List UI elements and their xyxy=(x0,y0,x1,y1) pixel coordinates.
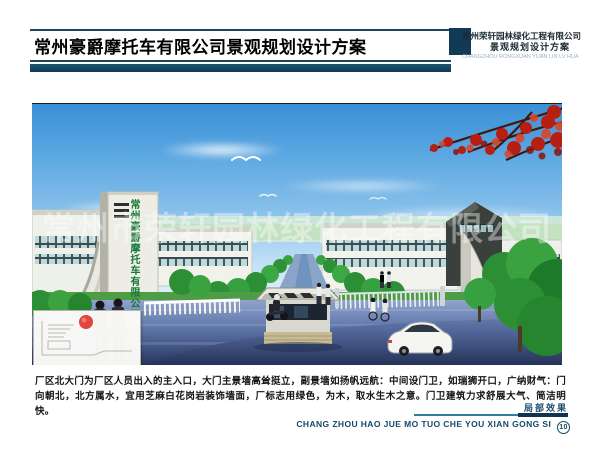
company-pinyin: CHANGZHOU RONGXUAN YUAN LIN LV HUA xyxy=(462,54,570,61)
footer-rule xyxy=(414,412,568,417)
keyplan-inset xyxy=(33,310,141,365)
company-subtitle: 景观规划设计方案 xyxy=(462,42,570,53)
page-title: 常州豪爵摩托车有限公司景观规划设计方案 xyxy=(30,31,451,59)
company-name: 常州荣轩园林绿化工程有限公司 xyxy=(462,31,570,42)
maple-branch xyxy=(430,105,562,160)
birds xyxy=(232,157,406,216)
title-bar xyxy=(30,64,451,72)
location-marker xyxy=(79,315,93,329)
footer-pinyin: CHANG ZHOU HAO JUE MO TUO CHE YOU XIAN G… xyxy=(296,419,570,434)
header-title-box: 常州豪爵摩托车有限公司景观规划设计方案 xyxy=(30,29,451,72)
keyplan-drawing xyxy=(34,311,138,363)
footer-rule-thick xyxy=(518,413,568,417)
presentation-board-page: 常州豪爵摩托车有限公司景观规划设计方案 常州荣轩园林绿化工程有限公司 景观规划设… xyxy=(0,0,600,463)
rendering-image: 常州豪爵摩托车有限公司 常州市荣轩园林绿化工程有限公司 xyxy=(32,103,562,365)
header-company-block: 常州荣轩园林绿化工程有限公司 景观规划设计方案 CHANGZHOU RONGXU… xyxy=(462,31,570,61)
title-rule-mid xyxy=(30,60,451,62)
footer-pinyin-text: CHANG ZHOU HAO JUE MO TUO CHE YOU XIAN G… xyxy=(296,419,551,429)
footer-rule-thin xyxy=(414,414,518,416)
page-number-badge: 10 xyxy=(557,421,570,434)
